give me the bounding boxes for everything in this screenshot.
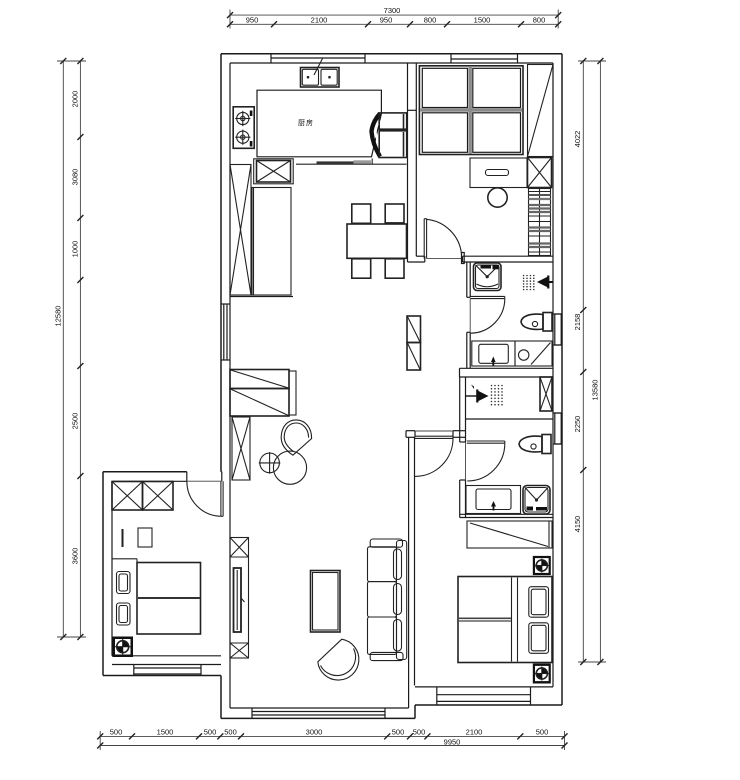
svg-text:4022: 4022 (573, 131, 582, 148)
svg-text:4150: 4150 (573, 516, 582, 533)
svg-text:800: 800 (424, 16, 437, 25)
svg-text:3600: 3600 (71, 548, 80, 565)
svg-text:1500: 1500 (474, 16, 491, 25)
svg-text:厨房: 厨房 (298, 118, 314, 127)
svg-text:9950: 9950 (444, 738, 461, 747)
svg-text:3080: 3080 (71, 169, 80, 186)
svg-text:500: 500 (413, 728, 426, 737)
svg-text:2100: 2100 (466, 728, 483, 737)
svg-text:7300: 7300 (384, 6, 401, 15)
svg-text:2000: 2000 (71, 91, 80, 108)
svg-text:500: 500 (536, 728, 549, 737)
svg-text:2100: 2100 (311, 16, 328, 25)
svg-text:1000: 1000 (71, 241, 80, 258)
svg-text:500: 500 (224, 728, 237, 737)
svg-text:500: 500 (392, 728, 405, 737)
svg-text:1500: 1500 (157, 728, 174, 737)
svg-text:500: 500 (110, 728, 123, 737)
svg-text:2250: 2250 (573, 416, 582, 433)
svg-text:950: 950 (246, 16, 259, 25)
svg-text:500: 500 (204, 728, 217, 737)
svg-text:2158: 2158 (573, 314, 582, 331)
svg-text:2500: 2500 (71, 413, 80, 430)
svg-text:12580: 12580 (54, 306, 63, 327)
svg-text:13580: 13580 (591, 380, 600, 401)
svg-text:950: 950 (380, 16, 393, 25)
svg-text:3000: 3000 (306, 728, 323, 737)
svg-text:800: 800 (533, 16, 546, 25)
